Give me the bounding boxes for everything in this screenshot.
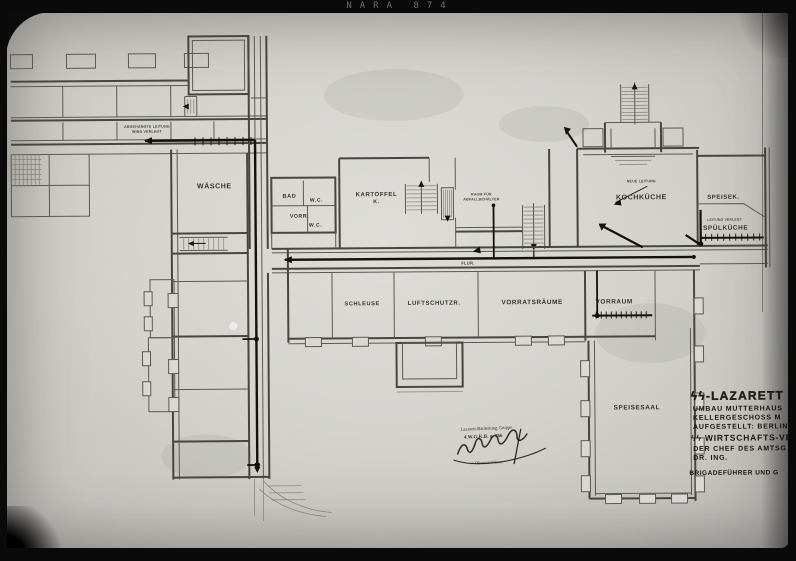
approval-stamp: Lazarett-Bauleitung Gruppe 4.W.G.K.B. u.… [453, 423, 547, 466]
title-line7: DR. ING. [693, 455, 728, 462]
room-label-kartoffel: KARTOFFEL [356, 192, 398, 198]
note-store-line2: ABFALLBEHÄLTER [463, 197, 500, 201]
paper-smudges [159, 67, 707, 479]
photo-edge-shadow [761, 12, 789, 548]
tiny-annotations: ABGEHÄNGTE LEITUNG WIRD VERLEGT RAUM FÜR… [124, 121, 743, 226]
mid-staircase [522, 149, 550, 251]
wing-top-left-walls [10, 53, 267, 217]
room-label-luftschutz: LUFTSCHUTZR. [408, 301, 461, 307]
kartoffel-and-stairs-walls [339, 157, 523, 248]
photo-canvas: WÄSCHE BAD W.C. VORR. W.C. KARTOFFEL K. … [0, 0, 796, 561]
archive-label: NARA 874 [320, 1, 480, 11]
room-label-vorraum: VORRAUM [596, 298, 633, 305]
room-label-vorr: VORR. [290, 214, 309, 220]
corridor-label-flur: FLUR. [461, 260, 474, 265]
floorplan-drawing: WÄSCHE BAD W.C. VORR. W.C. KARTOFFEL K. … [0, 0, 796, 561]
stamp-line1: Lazarett-Bauleitung Gruppe [461, 425, 513, 432]
room-label-speisesaal: SPEISESAAL [614, 404, 661, 411]
photo-frame-left [0, 0, 7, 561]
note-scullery: LEITUNG VERLEGT [707, 218, 743, 222]
room-label-spuelkueche: SPÜLKÜCHE [703, 223, 748, 232]
room-label-speisekammer: SPEISEK. [707, 195, 740, 201]
note-store-line1: RAUM FÜR [471, 191, 492, 196]
room-labels: WÄSCHE BAD W.C. VORR. W.C. KARTOFFEL K. … [197, 179, 750, 415]
note-wing-line1: ABGEHÄNGTE LEITUNG [124, 125, 170, 129]
kitchen-block-walls [577, 81, 770, 268]
photo-frame-bottom [0, 548, 796, 561]
room-label-kartoffel-k: K. [373, 199, 379, 205]
ink-duct-lines [144, 125, 765, 473]
room-label-wc-lower: W.C. [309, 223, 322, 229]
corner-shadow-top-right [729, 12, 789, 58]
photo-frame-top: NARA 874 [0, 0, 796, 13]
room-label-wc-upper: W.C. [310, 198, 323, 204]
note-kitchen: NEUE LEITUNG [627, 179, 656, 183]
room-label-kochkueche: KOCHKÜCHE [616, 192, 667, 201]
room-label-schleuse: SCHLEUSE [345, 301, 380, 307]
note-wing-line2: WIRD VERLEGT [132, 130, 163, 134]
room-label-vorratsraeume: VORRATSRÄUME [501, 298, 563, 306]
photo-frame-right [788, 0, 796, 561]
room-label-bad: BAD [282, 194, 296, 200]
room-label-waesche: WÄSCHE [197, 182, 232, 190]
